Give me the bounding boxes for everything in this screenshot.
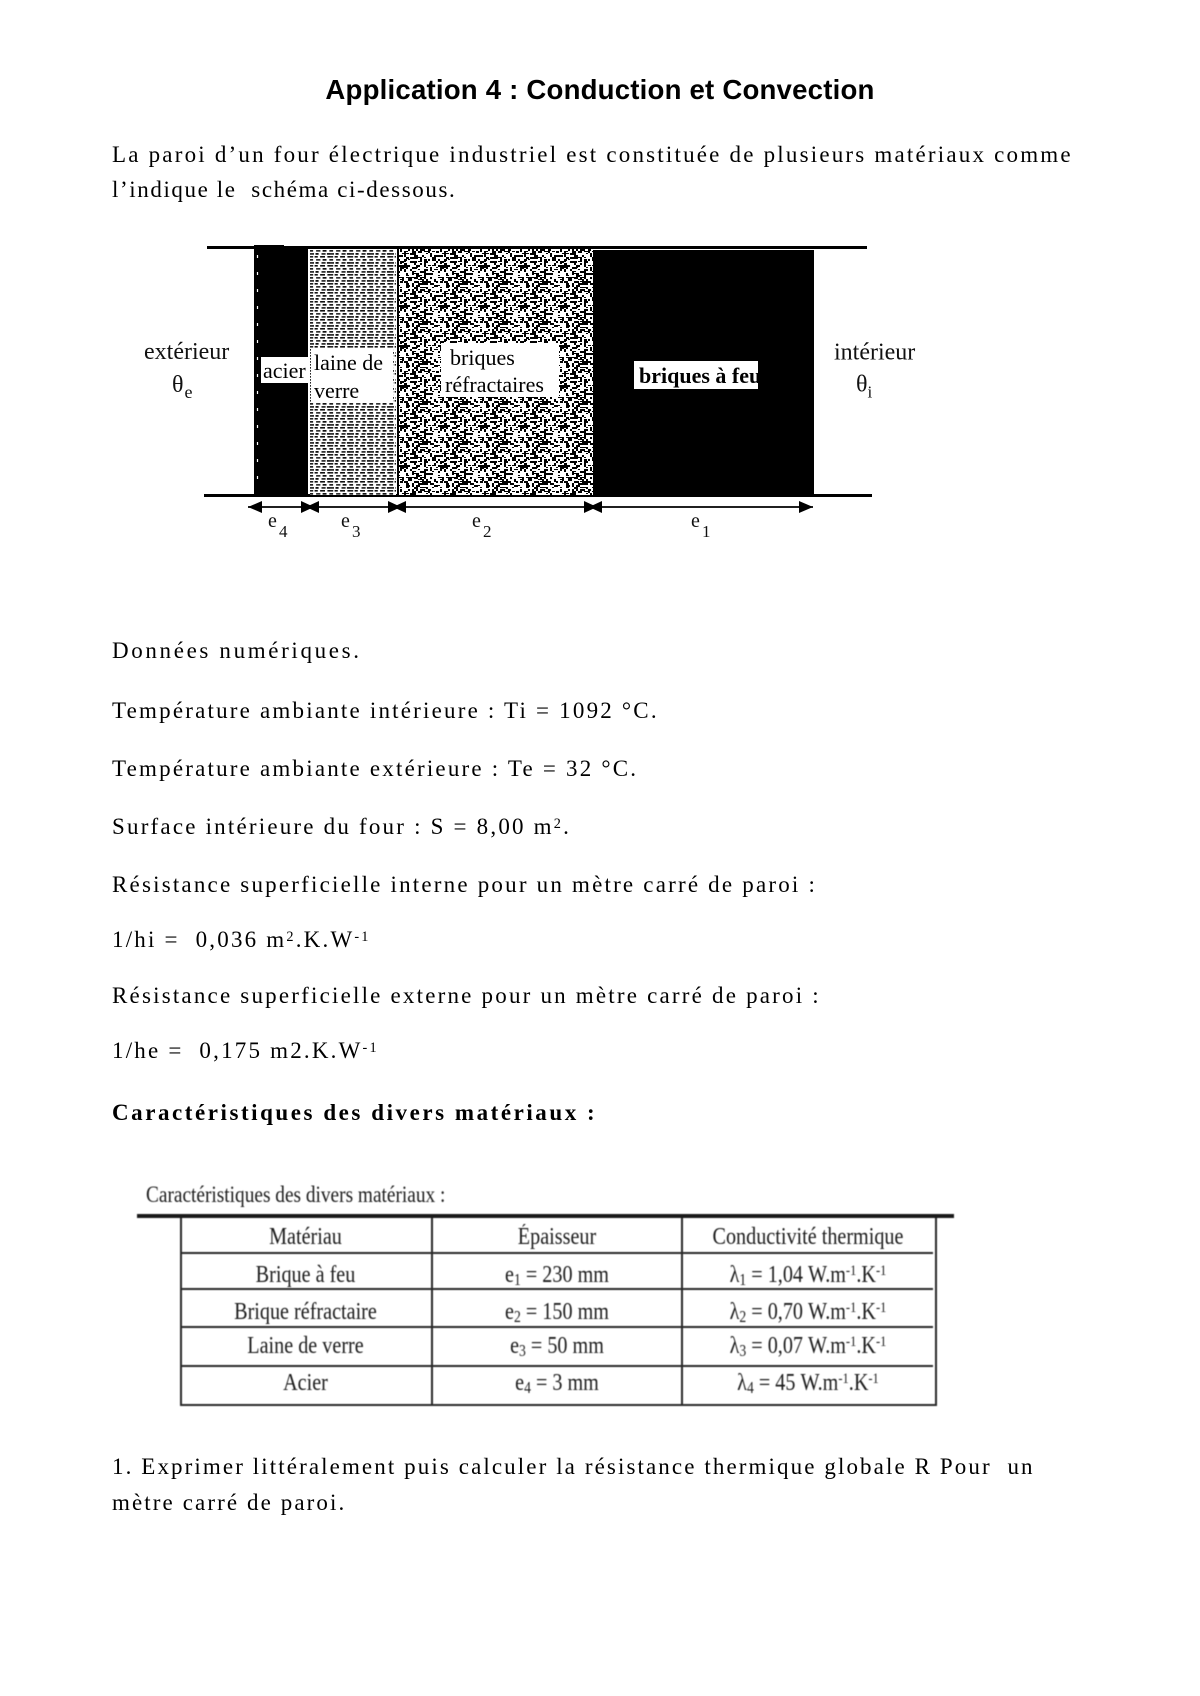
svg-text:θi: θi bbox=[856, 372, 873, 402]
svg-text:réfractaires: réfractaires bbox=[445, 372, 544, 397]
svg-text:verre: verre bbox=[314, 378, 359, 403]
svg-text:1: 1 bbox=[702, 522, 711, 541]
svg-text:e: e bbox=[268, 510, 277, 532]
svg-text:e: e bbox=[472, 510, 481, 532]
svg-text:extérieur: extérieur bbox=[144, 339, 229, 365]
svg-text:intérieur: intérieur bbox=[834, 340, 915, 366]
svg-text:e: e bbox=[691, 510, 700, 532]
svg-text:briques à feu: briques à feu bbox=[639, 363, 761, 388]
svg-text:acier: acier bbox=[263, 358, 306, 383]
svg-text:e: e bbox=[341, 510, 350, 532]
svg-text:briques: briques bbox=[450, 345, 515, 370]
svg-text:θe: θe bbox=[172, 372, 193, 402]
svg-text:3: 3 bbox=[352, 522, 361, 541]
svg-text:laine de: laine de bbox=[314, 350, 383, 375]
svg-text:4: 4 bbox=[279, 522, 288, 541]
svg-text:2: 2 bbox=[483, 522, 492, 541]
